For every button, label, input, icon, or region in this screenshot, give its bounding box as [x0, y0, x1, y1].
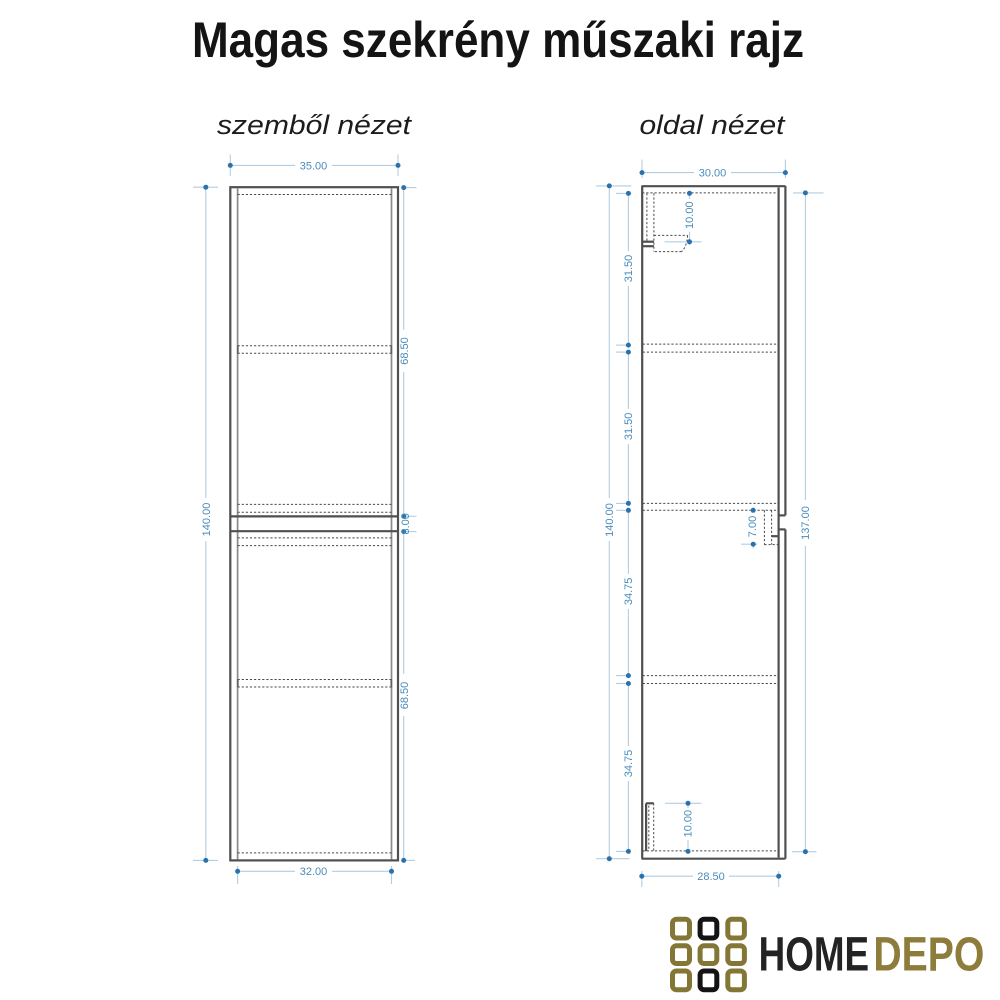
svg-text:7.00: 7.00 — [747, 516, 759, 537]
svg-text:30.00: 30.00 — [699, 168, 727, 180]
svg-text:31.50: 31.50 — [623, 255, 635, 283]
svg-text:32.00: 32.00 — [300, 866, 328, 878]
svg-text:140.00: 140.00 — [604, 503, 616, 537]
svg-text:oldal nézet: oldal nézet — [640, 110, 787, 140]
svg-text:DEPO: DEPO — [873, 927, 984, 981]
svg-text:34.75: 34.75 — [623, 750, 635, 778]
svg-text:28.50: 28.50 — [697, 871, 725, 883]
svg-text:10.00: 10.00 — [683, 810, 695, 838]
svg-text:szemből nézet: szemből nézet — [217, 110, 413, 140]
svg-text:140.00: 140.00 — [201, 503, 213, 537]
svg-text:8.00: 8.00 — [400, 513, 412, 534]
svg-text:137.00: 137.00 — [800, 506, 812, 540]
svg-text:HOME: HOME — [759, 927, 870, 981]
svg-text:Magas szekrény műszaki rajz: Magas szekrény műszaki rajz — [192, 12, 804, 68]
svg-text:35.00: 35.00 — [300, 160, 328, 172]
svg-text:34.75: 34.75 — [623, 578, 635, 606]
svg-text:31.50: 31.50 — [623, 413, 635, 441]
svg-text:68.50: 68.50 — [399, 337, 411, 365]
svg-text:10.00: 10.00 — [684, 201, 696, 229]
svg-text:68.50: 68.50 — [399, 682, 411, 710]
